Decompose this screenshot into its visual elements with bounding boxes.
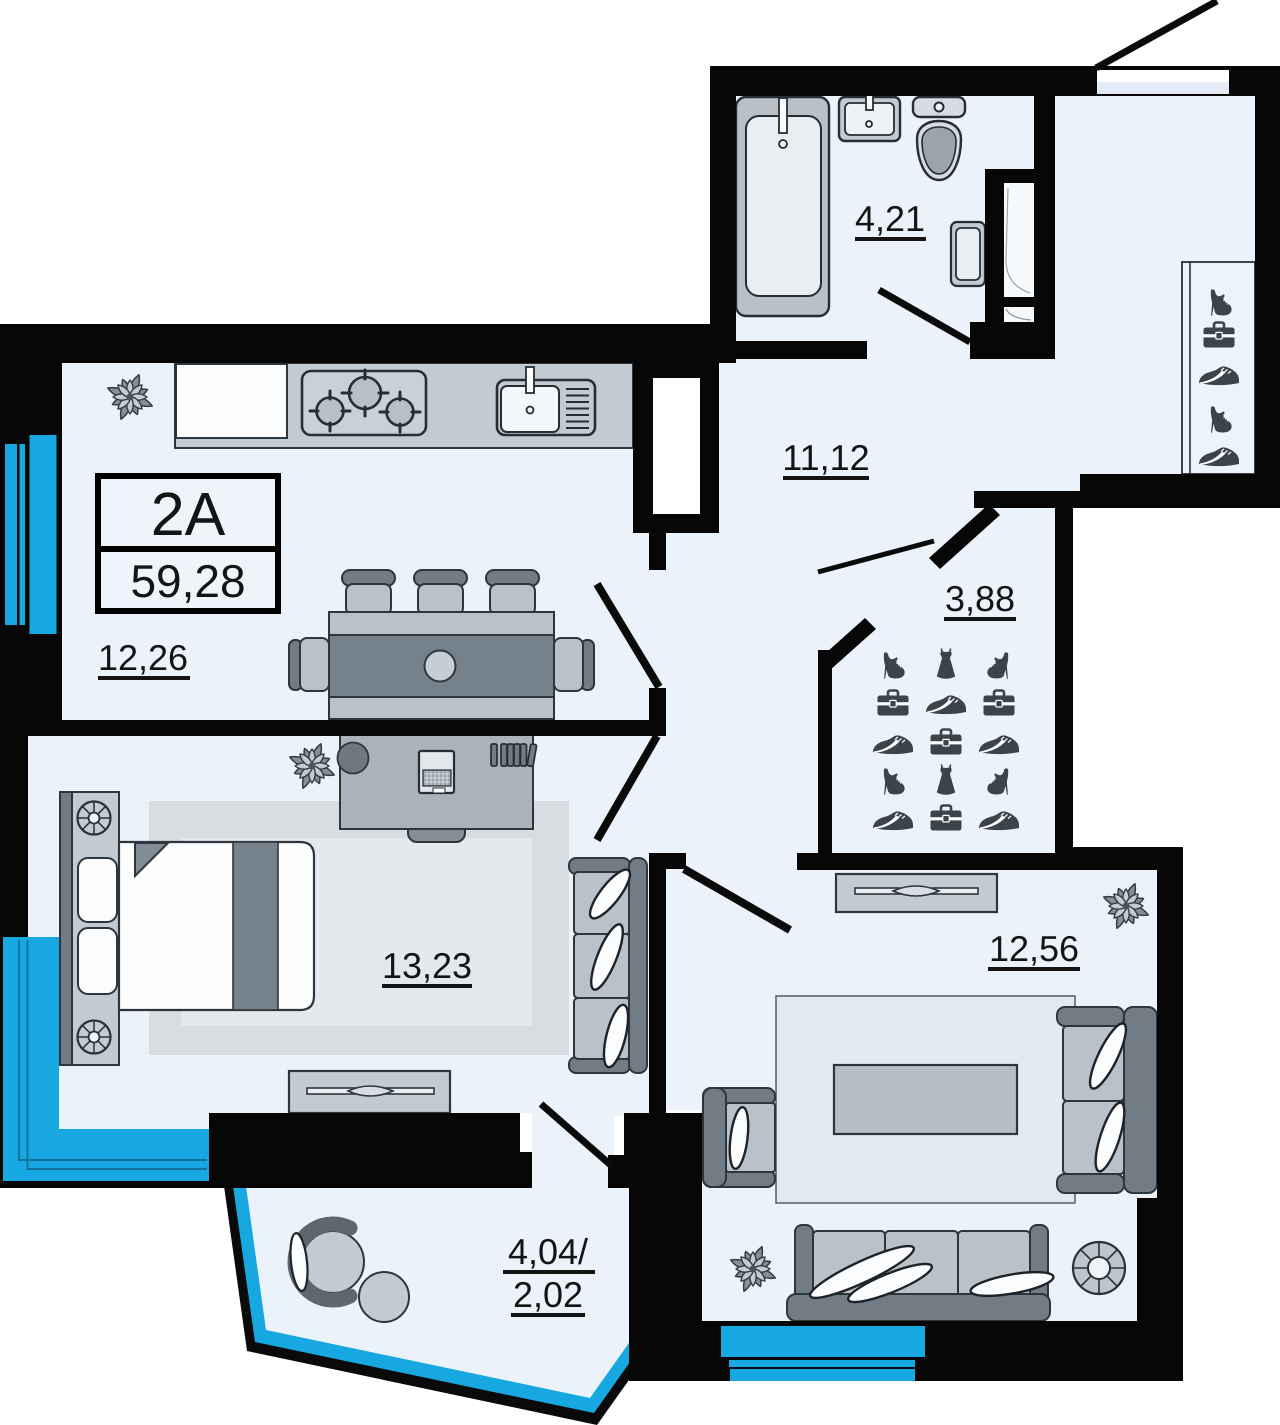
- svg-text:11,12: 11,12: [782, 437, 869, 478]
- svg-text:4,04/: 4,04/: [508, 1231, 588, 1272]
- svg-text:2A: 2A: [151, 480, 226, 548]
- svg-text:12,56: 12,56: [989, 928, 1079, 969]
- svg-text:59,28: 59,28: [130, 555, 245, 607]
- svg-text:2,02: 2,02: [513, 1274, 583, 1315]
- svg-text:13,23: 13,23: [382, 945, 472, 986]
- svg-text:12,26: 12,26: [98, 637, 188, 678]
- svg-text:3,88: 3,88: [945, 578, 1015, 619]
- svg-text:4,21: 4,21: [855, 198, 925, 239]
